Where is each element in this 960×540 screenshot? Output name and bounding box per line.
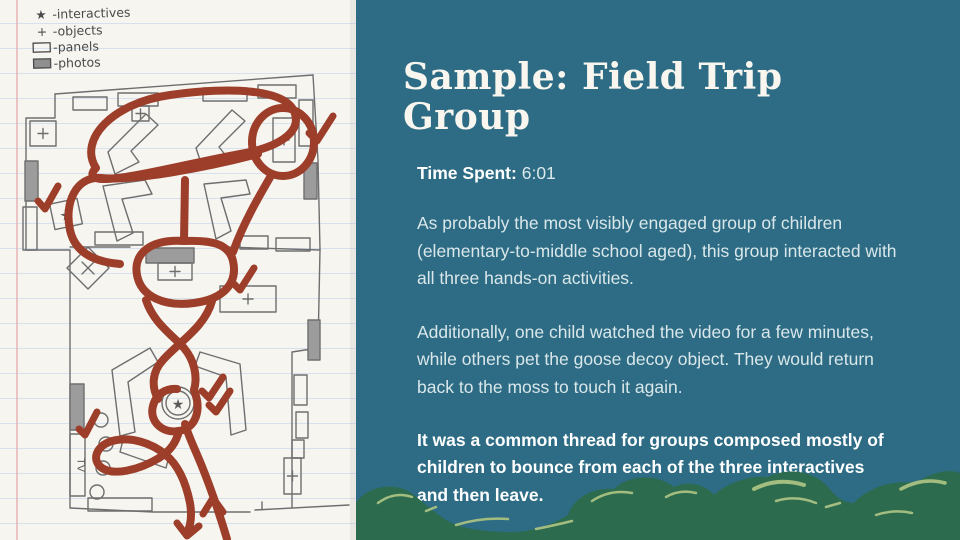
bush-silhouette — [356, 471, 960, 540]
time-spent-label: Time Spent: — [417, 163, 517, 183]
star-icon: ★ — [35, 7, 47, 22]
bushes-illustration — [356, 445, 960, 540]
legend-label-panels: -panels — [53, 38, 99, 54]
floorplan-sketch: ★ -interactives + -objects -panels -phot… — [0, 0, 356, 540]
photo-icon — [33, 59, 50, 68]
notebook-paper — [0, 0, 356, 540]
time-spent-value: 6:01 — [522, 163, 556, 183]
star-interactive-glyph-2: ★ — [172, 396, 185, 412]
legend-label-interactives: -interactives — [52, 5, 131, 22]
paragraph-engagement: As probably the most visibly engaged gro… — [417, 210, 899, 292]
slide-title: Sample: Field Trip Group — [403, 58, 920, 137]
tv-label: TV — [75, 458, 87, 473]
floorplan-sketch-panel: ★ -interactives + -objects -panels -phot… — [0, 0, 356, 540]
legend-label-photos: -photos — [53, 54, 100, 70]
plus-icon: + — [37, 24, 48, 39]
legend-label-objects: -objects — [53, 22, 103, 38]
time-spent-row: Time Spent: 6:01 — [417, 163, 899, 184]
paragraph-video-goose: Additionally, one child watched the vide… — [417, 319, 899, 401]
